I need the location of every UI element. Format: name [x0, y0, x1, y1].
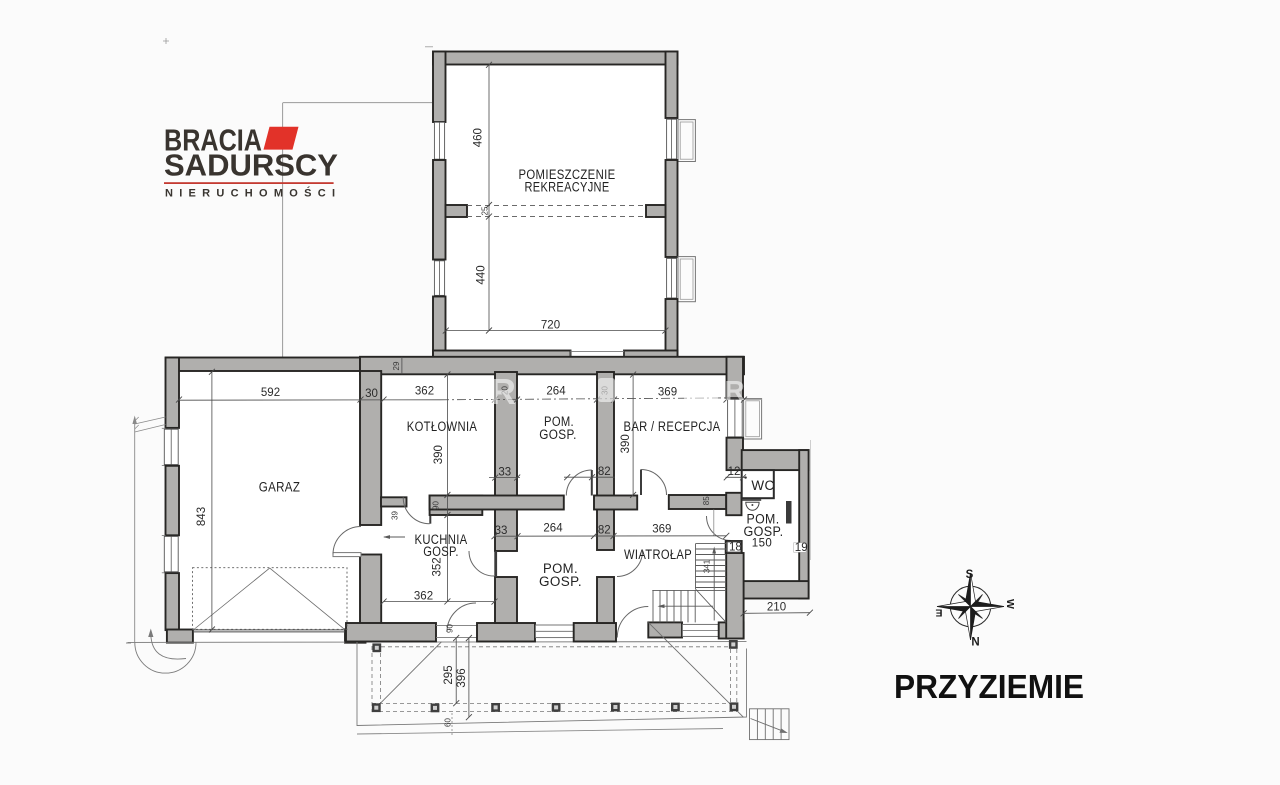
svg-text:362: 362: [414, 591, 433, 603]
svg-text:369: 369: [652, 523, 671, 535]
svg-text:N: N: [971, 636, 979, 648]
svg-text:264: 264: [546, 386, 566, 398]
svg-text:S: S: [966, 569, 974, 581]
svg-text:60: 60: [444, 718, 453, 727]
svg-text:295: 295: [443, 665, 455, 684]
svg-text:WC: WC: [751, 478, 774, 493]
svg-text:90: 90: [432, 501, 441, 510]
svg-text:843: 843: [196, 507, 208, 526]
svg-text:E: E: [935, 607, 942, 619]
svg-text:341: 341: [703, 559, 712, 573]
svg-text:390: 390: [620, 434, 632, 453]
svg-text:33: 33: [495, 525, 508, 537]
svg-text:WIATROŁAP: WIATROŁAP: [624, 547, 692, 562]
svg-text:GOSP.: GOSP.: [423, 544, 459, 559]
svg-text:KOTŁOWNIA: KOTŁOWNIA: [407, 419, 478, 434]
svg-text:REKREACYJNE: REKREACYJNE: [525, 180, 610, 195]
svg-text:30: 30: [365, 388, 378, 400]
svg-text:352: 352: [432, 557, 444, 576]
svg-text:82: 82: [598, 524, 611, 536]
svg-text:440: 440: [475, 265, 487, 284]
svg-text:390: 390: [433, 445, 445, 464]
svg-text:25: 25: [481, 206, 490, 215]
svg-text:720: 720: [541, 319, 560, 331]
svg-text:150: 150: [752, 538, 772, 550]
svg-text:369: 369: [658, 387, 677, 399]
svg-text:GOSP.: GOSP.: [539, 427, 577, 442]
svg-text:BAR / RECEPCJA: BAR / RECEPCJA: [624, 419, 721, 434]
svg-text:39: 39: [391, 511, 400, 520]
svg-text:460: 460: [473, 128, 485, 147]
svg-text:SADURSCY: SADURSCY: [164, 149, 338, 183]
svg-text:19: 19: [795, 542, 808, 554]
svg-text:264: 264: [543, 523, 563, 535]
svg-text:GOSP.: GOSP.: [539, 574, 582, 589]
svg-text:362: 362: [415, 386, 434, 398]
svg-text:29: 29: [392, 361, 401, 370]
svg-text:82: 82: [598, 466, 611, 478]
svg-text:GARAZ: GARAZ: [259, 480, 301, 495]
svg-text:33: 33: [498, 466, 511, 478]
svg-text:90: 90: [446, 624, 455, 633]
svg-text:396: 396: [456, 668, 468, 687]
svg-text:18: 18: [729, 542, 742, 554]
svg-text:NIERUCHOMOŚCI: NIERUCHOMOŚCI: [165, 186, 335, 199]
svg-text:592: 592: [261, 387, 280, 399]
svg-text:85: 85: [702, 496, 711, 505]
svg-text:PRZYZIEMIE: PRZYZIEMIE: [894, 668, 1084, 705]
svg-text:R: R: [490, 371, 516, 412]
svg-text:R: R: [725, 375, 745, 406]
svg-text:210: 210: [767, 602, 786, 614]
svg-text:12: 12: [728, 466, 741, 478]
svg-text:W: W: [1004, 599, 1016, 609]
